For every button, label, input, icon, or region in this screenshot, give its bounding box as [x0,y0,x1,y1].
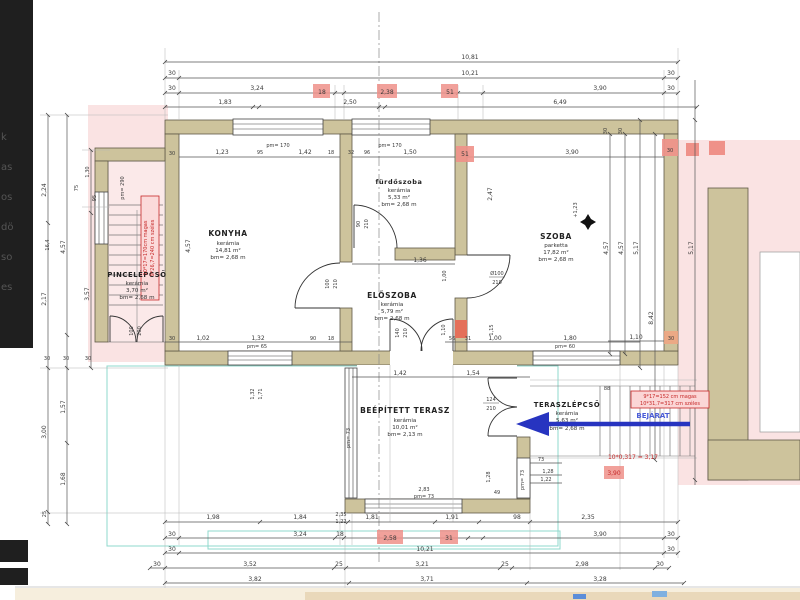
room-material: kerámia [217,240,240,247]
window-label: pm= 73 [414,494,434,500]
dim-text: 16,4 [45,239,51,250]
door-label: 210 [364,219,370,229]
dim-text: 1,15 [489,324,495,335]
dim-text: 2,58 [383,535,397,542]
door-label: 140 [395,328,401,338]
window-label: pm= 170 [266,143,289,149]
dim-text: 1,71 [258,388,264,399]
room-material: parketta [544,243,568,249]
dim-text: 30 [667,70,675,77]
room-name: SZOBA [540,232,572,241]
dim-text: 25 [501,561,509,568]
dim-text: 30 [168,546,176,553]
dim-text: 2,38 [380,89,394,96]
dim-text: 3,82 [248,576,262,583]
window-label: pm= 170 [378,143,401,149]
dim-text: 8,42 [648,311,655,325]
dim-text: 1,32 [251,335,265,342]
dim-text: 3,71 [420,576,434,583]
dim-text: 6,49 [553,99,567,106]
dim-text: 3,90 [593,531,607,538]
window-label: pm= 73 [520,470,526,490]
dim-text: 51 [461,151,469,158]
dim-text: 30 [603,128,609,134]
dim-text: 2,98 [575,561,589,568]
floorplan-screenshot: KONYHA kerámia 14,81 m² bm= 2,68 m fürdő… [0,0,800,600]
room-name: ELŐSZOBA [367,291,417,300]
dim-text: 1,10 [629,334,643,341]
dim-text: 3,28 [593,576,607,583]
door-label: 90 [356,221,362,227]
room-height: bm= 2,13 m [387,432,422,438]
dim-text: 1,00 [442,270,448,281]
dim-text: 30 [667,148,673,154]
dim-text: 1,68 [60,472,67,486]
dim-text: 10,81 [461,54,478,61]
dim-text: 1,28 [542,469,553,475]
dim-text: 95 [257,150,263,156]
dim-text: 3,24 [250,85,264,92]
door-label: 210 [403,328,409,338]
dim-text: 30 [85,356,91,362]
sidebar-fragment: es [1,282,12,293]
room-area: 14,81 m² [215,247,240,254]
dim-text: 30 [44,356,50,362]
room-area: 5,33 m² [388,194,410,201]
dim-text: 2,17 [41,292,48,306]
room-area: 10,01 m² [392,424,417,431]
dim-text: 1,22 [335,519,346,525]
dim-text: 1,84 [293,514,307,521]
dim-text: 30 [667,531,675,538]
dim-text: 1,10 [441,324,447,335]
dim-text: 18 [328,336,334,342]
dim-text: 1,36 [413,257,427,264]
dim-text: 30 [667,546,675,553]
dim-text: 32 [348,150,354,156]
dim-text: 2,83 [418,487,429,493]
dim-text: 1,02 [196,335,210,342]
basement-stairs-note-1: 10*17=170cm magas [143,220,149,275]
dim-text: 1,23 [215,149,229,156]
door-label: Ø100 [490,270,503,277]
dim-text: 95 [92,195,98,201]
door-label: 100 [129,326,135,336]
dim-text: 2,35 [581,514,595,521]
dim-text: 30 [169,336,175,342]
room-area: 3,70 m² [126,287,148,294]
dim-text: 4,57 [185,239,192,253]
room-area: 5,79 m² [381,308,403,315]
dim-text: 1,42 [393,370,407,377]
room-height: bm= 2,68 m [119,295,154,301]
dim-text: 3,90 [565,149,579,156]
door-label: 124 [486,397,496,403]
terrace-stairs-note-1: 9*17=152 cm magas [643,394,697,400]
dim-text: 4,57 [618,241,625,255]
dim-390-red: 3,90 [607,470,621,477]
room-height: bm= 2,68 m [374,316,409,322]
dim-text: 5,17 [633,241,640,255]
sidebar-fragment: so [1,252,12,263]
dim-text: 1,81 [365,514,379,521]
room-name: PINCELÉPCSŐ [107,270,166,279]
dim-text: 10,21 [416,546,433,553]
dim-text: 3,24 [293,531,307,538]
room-height: bm= 2,68 m [210,255,245,261]
dim-text: 31 [465,336,471,342]
room-name: TERASZLÉPCSŐ [534,400,601,409]
dim-text: 49 [494,490,500,496]
dim-text: 30 [668,336,674,342]
dim-text: 1,83 [218,99,232,106]
sidebar-fragment: dö [1,222,13,233]
dim-text: 98 [513,514,521,521]
taskbar-icon[interactable] [652,591,667,597]
entrance-label: BEJÁRAT [636,411,669,420]
dim-text: 1,00 [488,335,502,342]
dim-text: 3,90 [593,85,607,92]
dim-text: 1,50 [403,149,417,156]
room-material: kerámia [394,417,417,424]
dim-text: 96 [364,150,370,156]
left-dark-sidebar: k as os dö so es [0,0,33,585]
dim-text: 30 [168,70,176,77]
door-label: 200 [137,326,143,336]
dim-text: 3,52 [243,561,257,568]
dim-text: 1,54 [466,370,480,377]
stair-calc-note: 10*0,317 = 3,17 [608,454,658,461]
terrace [345,365,530,513]
dim-text: 73 [538,457,544,463]
dim-text: 4,57 [603,241,610,255]
dim-text: 25 [335,561,343,568]
dim-text: 3,21 [415,561,429,568]
room-area: 17,82 m² [543,249,568,256]
dim-text: 18 [336,531,344,538]
dim-text: 1,42 [298,149,312,156]
room-height: bm= 2,68 m [381,202,416,208]
dim-text: 5,17 [688,241,695,255]
sidebar-fragment: k [1,132,7,143]
window-label: pm= 65 [247,344,267,350]
dim-text: 18 [328,150,334,156]
sidebar-fragment: os [1,192,12,203]
dim-text: 1,32 [250,388,256,399]
taskbar-icon[interactable] [573,594,586,599]
dim-text: 51 [446,89,454,96]
dim-text: 1,57 [60,400,67,414]
room-name: KONYHA [208,229,247,238]
room-material: kerámia [126,280,149,287]
basement-stairs-note-2: 9*26,7=240 cm széles [149,219,156,276]
dim-text: 30 [63,356,69,362]
dim-text: 75 [74,185,80,191]
room-material: kerámia [556,410,579,417]
dim-text: 25 [42,511,48,517]
door-label: 210 [333,279,339,289]
level-value: +1,23 [573,202,579,217]
floorplan-drawing: KONYHA kerámia 14,81 m² bm= 2,68 m fürdő… [0,0,800,600]
bottom-strip [15,587,800,600]
room-name: fürdőszoba [376,177,423,186]
dim-text: 1,91 [445,514,459,521]
dim-text: 30 [667,85,675,92]
dim-text: 30 [656,561,664,568]
dim-text: 88 [604,386,610,392]
dim-text: 4,57 [60,240,67,254]
sidebar-fragment: as [1,162,12,173]
dim-text: 30 [153,561,161,568]
door-label: 210 [492,280,502,286]
door-label: 100 [325,279,331,289]
terrace-stairs-note-2: 10*31,7=317 cm széles [640,400,700,407]
dim-text: 1,22 [540,477,551,483]
room-material: kerámia [381,301,404,308]
entrance-arrow-icon [516,412,549,436]
window-label: pm= 290 [120,176,126,199]
dim-text: 10,21 [461,70,478,77]
dim-text: 56 [449,336,455,342]
dim-text: 3,57 [84,287,91,301]
dim-text: 30 [168,531,176,538]
dim-text: 1,98 [206,514,220,521]
dim-text: 31 [445,535,453,542]
room-material: kerámia [388,187,411,194]
dim-text: 2,47 [487,187,494,201]
dim-text: 1,28 [486,471,492,482]
dim-text: 30 [618,128,624,134]
window-label: pm= 73 [346,428,352,448]
dim-text: 2,50 [343,99,357,106]
room-name: BEÉPÍTETT TERASZ [360,406,450,415]
dim-text: 3,00 [41,425,48,439]
dim-text: 18 [318,89,326,96]
dim-text: 90 [310,336,316,342]
door-label: 210 [486,406,496,412]
dim-text: 2,35 [335,512,346,518]
dim-text: 30 [168,85,176,92]
dim-text: 2,24 [41,183,48,197]
room-height: bm= 2,68 m [538,257,573,263]
window-label: pm= 60 [555,344,575,350]
dim-text: 30 [169,151,175,157]
dim-text: 1,80 [563,335,577,342]
dim-text: 1,30 [85,166,91,177]
room-height: bm= 2,68 m [549,426,584,432]
